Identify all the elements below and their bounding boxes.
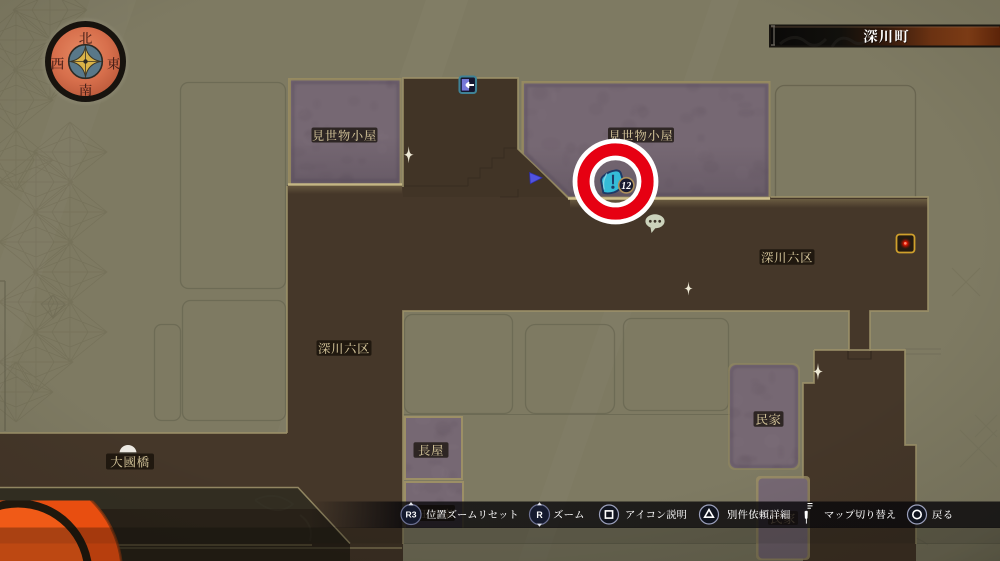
svg-text:R3: R3: [406, 510, 417, 520]
svg-text:R: R: [536, 510, 543, 520]
svg-text:12: 12: [621, 181, 631, 192]
